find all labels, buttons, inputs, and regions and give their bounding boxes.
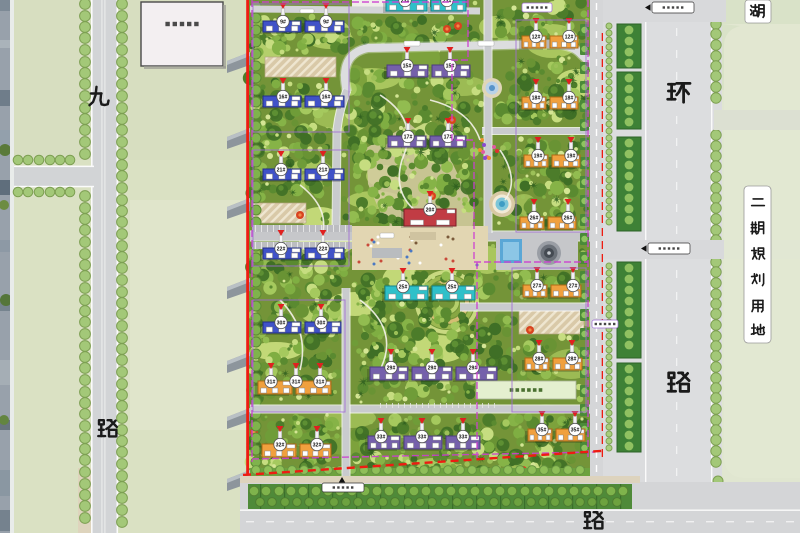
svg-text:28#: 28# xyxy=(568,356,577,362)
svg-text:35#: 35# xyxy=(538,427,547,433)
svg-text:17#: 17# xyxy=(404,134,413,140)
svg-text:29#: 29# xyxy=(469,365,478,371)
svg-text:33#: 33# xyxy=(377,434,386,440)
svg-text:32#: 32# xyxy=(276,442,285,448)
svg-text:35#: 35# xyxy=(571,427,580,433)
svg-text:33#: 33# xyxy=(459,434,468,440)
svg-text:25#: 25# xyxy=(399,284,408,290)
svg-text:18#: 18# xyxy=(532,95,541,101)
svg-text:15#: 15# xyxy=(446,63,455,69)
svg-text:30#: 30# xyxy=(277,320,286,326)
svg-text:20#: 20# xyxy=(426,207,435,213)
svg-text:12#: 12# xyxy=(565,34,574,40)
svg-text:12#: 12# xyxy=(532,34,541,40)
svg-text:22#: 22# xyxy=(277,246,286,252)
svg-text:31#: 31# xyxy=(292,379,301,385)
svg-text:31#: 31# xyxy=(316,379,325,385)
svg-text:18#: 18# xyxy=(565,95,574,101)
svg-text:30#: 30# xyxy=(317,320,326,326)
svg-text:16#: 16# xyxy=(279,94,288,100)
svg-text:32#: 32# xyxy=(313,442,322,448)
svg-text:21#: 21# xyxy=(319,167,328,173)
svg-text:33#: 33# xyxy=(418,434,427,440)
svg-text:27#: 27# xyxy=(533,283,542,289)
svg-text:26#: 26# xyxy=(564,215,573,221)
svg-text:9#: 9# xyxy=(280,19,286,25)
svg-text:21#: 21# xyxy=(277,167,286,173)
svg-text:29#: 29# xyxy=(387,365,396,371)
svg-text:9#: 9# xyxy=(323,19,329,25)
svg-text:31#: 31# xyxy=(267,379,276,385)
svg-text:26#: 26# xyxy=(530,215,539,221)
svg-text:15#: 15# xyxy=(403,63,412,69)
svg-text:27#: 27# xyxy=(569,283,578,289)
svg-text:22#: 22# xyxy=(319,246,328,252)
svg-text:17#: 17# xyxy=(444,134,453,140)
svg-text:19#: 19# xyxy=(534,153,543,159)
svg-text:16#: 16# xyxy=(322,94,331,100)
svg-text:19#: 19# xyxy=(567,153,576,159)
svg-text:28#: 28# xyxy=(535,356,544,362)
svg-text:29#: 29# xyxy=(428,365,437,371)
svg-text:25#: 25# xyxy=(448,284,457,290)
